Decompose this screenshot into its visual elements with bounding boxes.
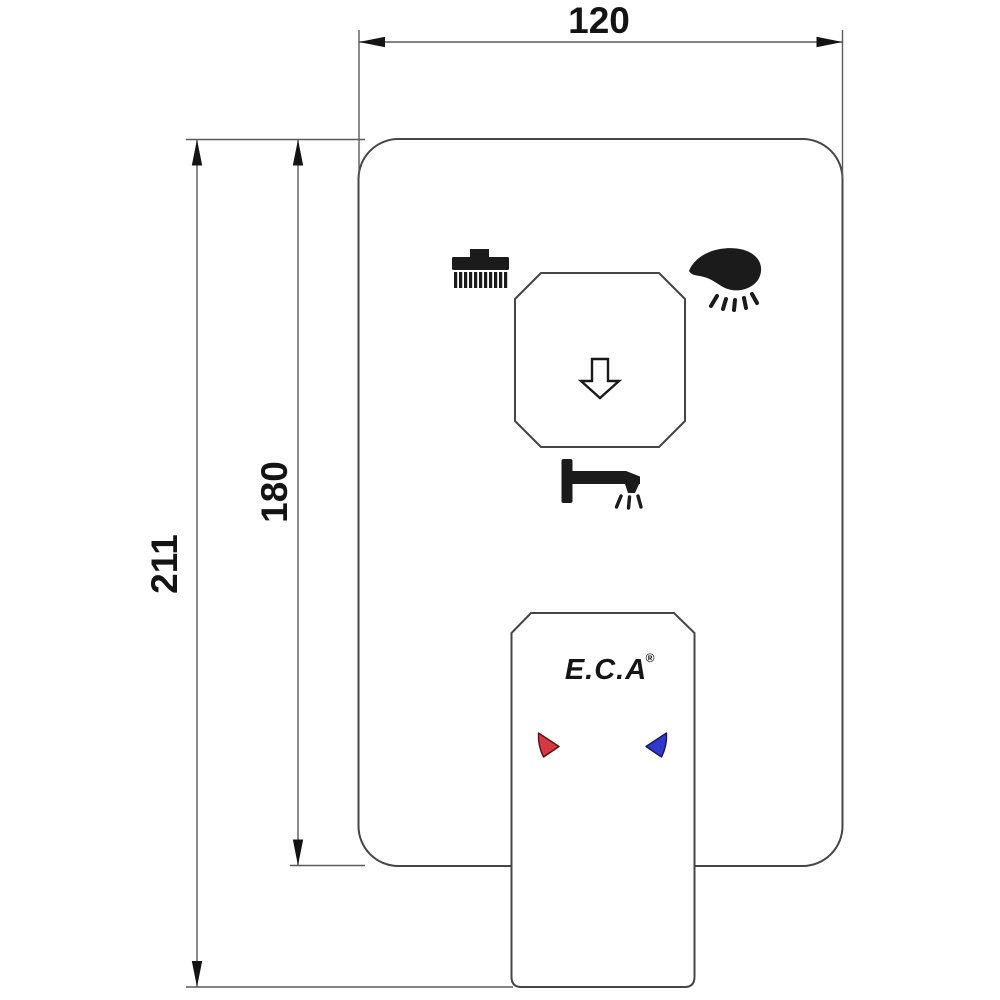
brand-logo: E.C.A xyxy=(565,654,647,686)
dimension-width-label: 120 xyxy=(568,0,630,41)
dimension-outer-height-label: 211 xyxy=(144,534,185,594)
mixer-technical-drawing: 120 211 180 xyxy=(0,0,1000,1000)
mixer-handle: E.C.A ® xyxy=(512,613,695,987)
technical-drawing-page: 120 211 180 xyxy=(0,0,1000,1000)
registered-mark: ® xyxy=(646,651,655,665)
dimension-inner-height-label: 180 xyxy=(254,461,295,523)
diverter-knob xyxy=(515,273,685,447)
